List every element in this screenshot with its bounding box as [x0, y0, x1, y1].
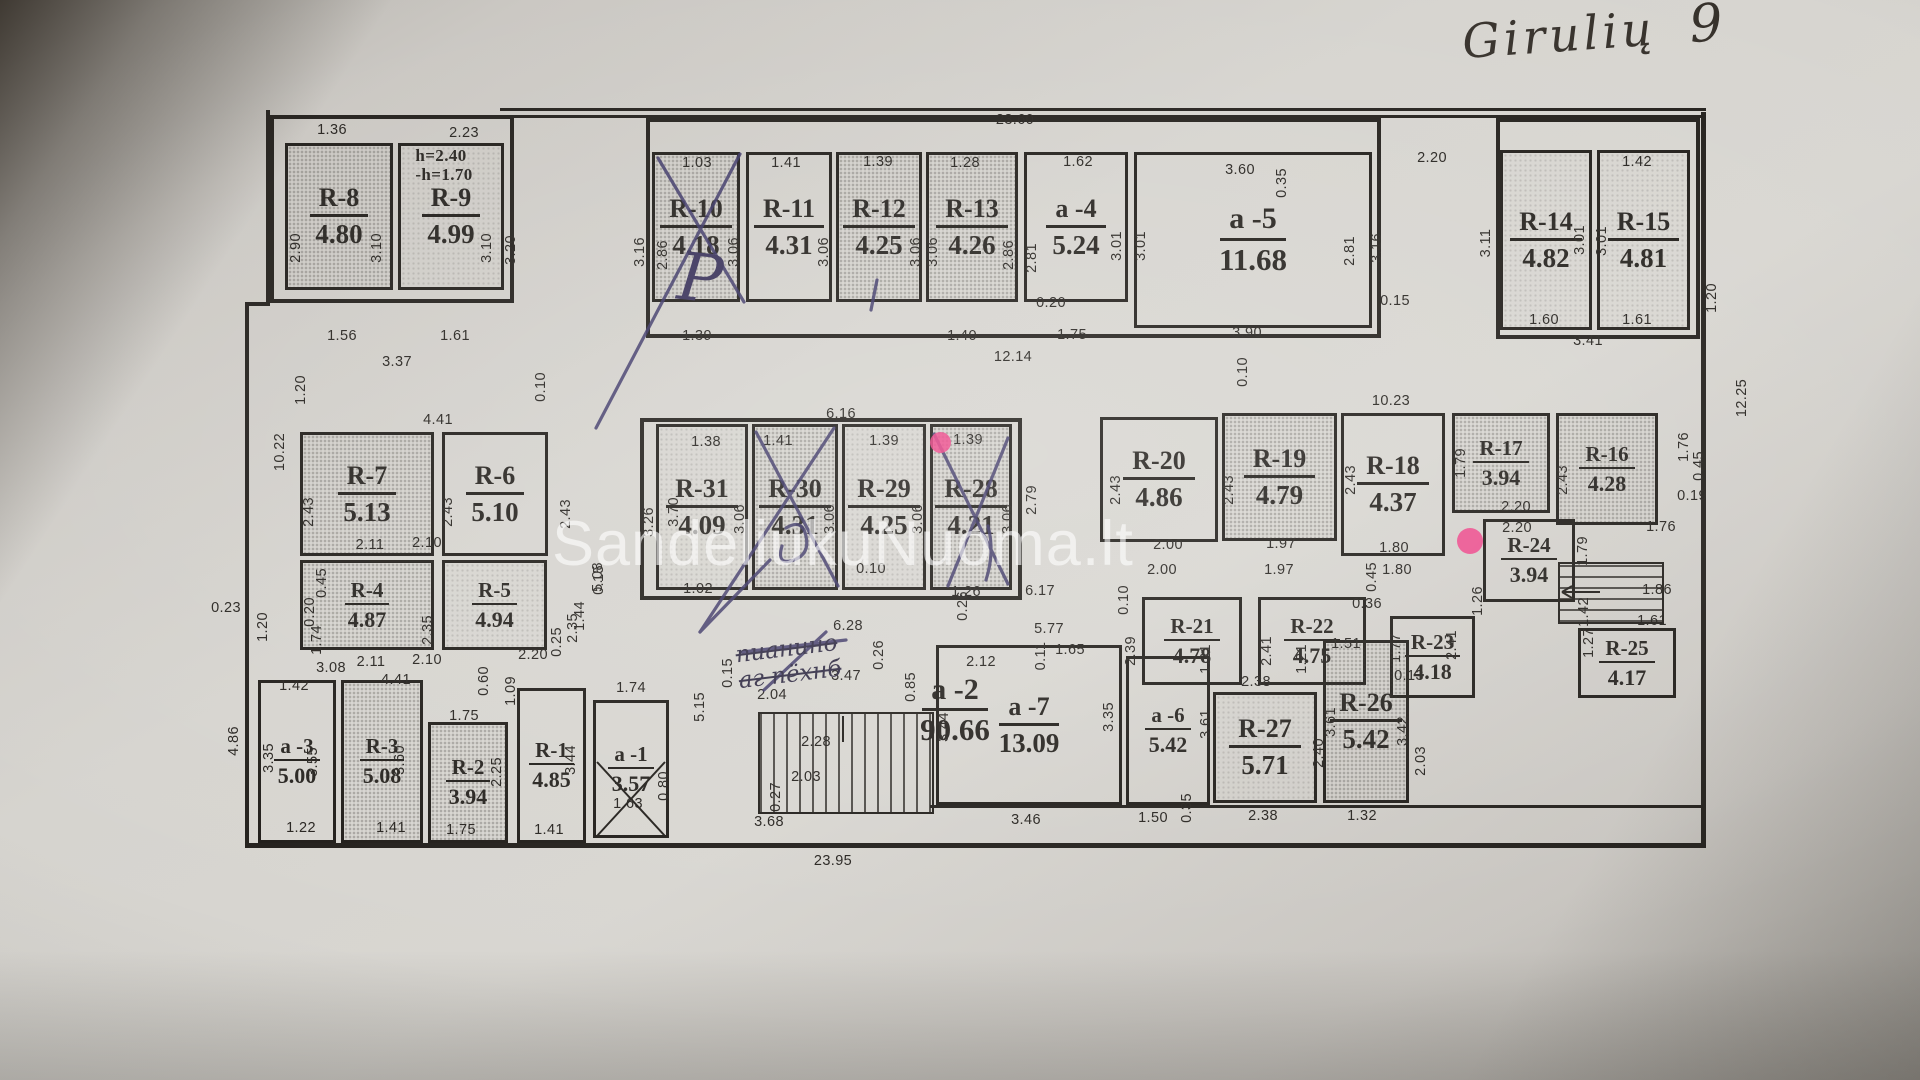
dimension-label: 1.51 [1331, 636, 1361, 652]
dimension-label: 2.43 [1108, 475, 1124, 505]
dimension-label: 1.61 [1622, 312, 1652, 328]
dimension-label: 1.02 [683, 581, 713, 597]
room-name: R-26 [1330, 689, 1401, 722]
dimension-label: 1.42 [1622, 154, 1652, 170]
dimension-label: 1.20 [293, 375, 309, 405]
dimension-label: 0.26 [871, 640, 887, 670]
room-R-15: R-154.81 [1597, 150, 1690, 330]
room-area: 13.09 [999, 726, 1060, 757]
dimension-label: 0.13 [1394, 668, 1424, 684]
dimension-label: 0.45 [314, 568, 330, 598]
dimension-label: 0.35 [1274, 168, 1290, 198]
dimension-label: 3.01 [1109, 231, 1125, 261]
dimension-label: 3.06 [726, 237, 742, 267]
dimension-label: 2.43 [301, 497, 317, 527]
room-area: 4.28 [1588, 469, 1627, 495]
height-note-line1: h=2.40 [415, 146, 466, 166]
dimension-label: 2.20 [1417, 150, 1447, 166]
dimension-label: 3.20 [503, 235, 519, 265]
dimension-label: 1.63 [613, 796, 643, 812]
dimension-label: 0.10 [1116, 585, 1132, 615]
dimension-label: 0.35 [1179, 793, 1195, 823]
room-a-4: a -45.24 [1024, 152, 1128, 302]
dimension-label: 3.42 [1395, 716, 1411, 746]
dimension-label: 1.41 [534, 822, 564, 838]
room-area: 4.37 [1369, 485, 1416, 516]
dimension-label: 2.20 [518, 647, 548, 663]
room-area: 4.81 [1620, 241, 1667, 272]
dimension-label: 0.15 [720, 658, 736, 688]
dimension-label: 1.75 [1057, 327, 1087, 343]
dimension-label: 4.41 [381, 672, 411, 688]
dimension-label: 1.27 [1581, 628, 1597, 658]
room-area: 3.57 [612, 769, 651, 795]
dimension-label: 0.60 [476, 666, 492, 696]
room-name: R-9 [422, 184, 480, 217]
dimension-label: 0.20 [302, 597, 318, 627]
dimension-label: 12.25 [1734, 379, 1750, 417]
room-name: R-15 [1608, 208, 1679, 241]
wall-bottom-right-inner [930, 805, 1706, 808]
dimension-label: 1.61 [440, 328, 470, 344]
room-area: 4.25 [855, 228, 902, 259]
room-name: R-5 [472, 579, 517, 605]
dimension-label: 3.90 [1232, 325, 1262, 341]
room-area: 11.68 [1219, 241, 1287, 277]
room-name: R-28 [935, 475, 1006, 508]
room-area: 5.13 [343, 495, 390, 526]
dimension-label: 1.76 [1676, 432, 1692, 462]
dimension-label: 10.23 [1372, 393, 1410, 409]
room-name: R-16 [1579, 443, 1634, 469]
dimension-label: 1.80 [1379, 540, 1409, 556]
dimension-label: 0.25 [549, 627, 565, 657]
room-name: R-11 [754, 195, 824, 228]
room-R-11: R-114.31 [746, 152, 832, 302]
room-name: R-12 [843, 195, 914, 228]
wall-bottom [245, 843, 1706, 848]
dimension-label: 3.61 [1198, 709, 1214, 739]
dimension-label: 2.11 [357, 654, 386, 670]
dimension-label: 2.81 [1024, 243, 1040, 273]
room-name: R-18 [1357, 452, 1428, 485]
dimension-label: 4.41 [423, 412, 453, 428]
dimension-label: 12.14 [994, 349, 1032, 365]
room-R-16: R-164.28 [1556, 413, 1658, 525]
dimension-label: 2.38 [1241, 674, 1271, 690]
dimension-label: 3.08 [316, 660, 346, 676]
dimension-label: 2.10 [412, 652, 442, 668]
dimension-label: 3.06 [925, 237, 941, 267]
dimension-label: 1.56 [327, 328, 357, 344]
dimension-label: 3.35 [1101, 702, 1117, 732]
dimension-label: 1.32 [1347, 808, 1377, 824]
dimension-label: 1.74 [309, 625, 325, 655]
dimension-label: 0.36 [1352, 596, 1382, 612]
room-area: 4.86 [1135, 480, 1182, 511]
room-R-12: R-124.25 [836, 152, 922, 302]
room-name: R-10 [660, 195, 731, 228]
dimension-label: 1.39 [869, 433, 899, 449]
room-area: 5.42 [1342, 722, 1389, 753]
height-note-line2: -h=1.70 [415, 165, 472, 185]
dimension-label: 1.76 [1646, 519, 1676, 535]
dimension-label: 1.60 [1529, 312, 1559, 328]
dimension-label: 5.77 [1034, 621, 1064, 637]
dimension-label: 3.16 [1369, 233, 1385, 263]
dimension-label: 1.75 [449, 708, 479, 724]
dimension-label: 1.20 [1704, 283, 1720, 313]
dimension-label: 0.11 [1033, 642, 1049, 671]
room-name: R-24 [1501, 534, 1556, 560]
dimension-label: 0.10 [1235, 357, 1251, 387]
room-area: 3.94 [449, 782, 488, 808]
dimension-label: 2.23 [449, 125, 479, 141]
room-name: R-4 [345, 579, 390, 605]
dimension-label: 0.80 [656, 771, 672, 801]
dimension-label: 4.86 [226, 726, 242, 756]
handwritten-title-word: Girulių [1461, 2, 1658, 70]
room-name: R-19 [1244, 445, 1315, 478]
room-name: a -6 [1145, 704, 1190, 730]
dimension-label: 1.03 [682, 155, 712, 171]
dimension-label: 1.26 [1470, 586, 1486, 616]
dimension-label: 0.10 [533, 372, 549, 402]
dimension-label: 2.43 [440, 497, 456, 527]
room-R-13: R-134.26 [926, 152, 1018, 302]
dimension-label: 2.40 [1311, 738, 1327, 768]
dimension-label: 1.77 [1388, 633, 1404, 663]
dimension-label: 2.03 [1413, 746, 1429, 776]
dimension-label: 0.45 [1364, 562, 1380, 592]
room-name: a -5 [1220, 203, 1286, 241]
room-name: R-2 [446, 756, 491, 782]
dimension-label: 3.06 [816, 237, 832, 267]
dimension-label: 2.35 [420, 615, 436, 645]
dimension-label: 3.68 [754, 814, 784, 830]
dimension-label: 3.37 [382, 354, 412, 370]
dimension-label: 2.39 [1123, 636, 1139, 666]
dimension-label: 2.00 [1147, 562, 1177, 578]
dimension-label: 1.42 [279, 678, 309, 694]
dimension-label: 0.23 [211, 600, 241, 616]
dimension-label: 1.40 [947, 328, 977, 344]
dimension-label: 1.09 [503, 676, 519, 706]
dimension-label: 3.10 [479, 233, 495, 263]
room-name: R-27 [1229, 715, 1300, 748]
room-name: R-14 [1510, 208, 1581, 241]
dimension-label: 2.25 [489, 757, 505, 787]
dimension-label: 3.44 [936, 712, 952, 742]
room-name: R-25 [1599, 637, 1654, 663]
room-area: 5.42 [1149, 730, 1188, 756]
room-area: 4.26 [948, 228, 995, 259]
dimension-label: 1.62 [1063, 154, 1093, 170]
dimension-label: 2.41 [1259, 636, 1275, 666]
dimension-label: 0.26 [955, 591, 971, 621]
dimension-label: 2.20 [1502, 520, 1532, 536]
dimension-label: 1.21 [1198, 644, 1214, 674]
dimension-label: 3.10 [369, 233, 385, 263]
dimension-label: 23.60 [996, 112, 1034, 128]
dimension-label: 3.44 [563, 745, 579, 775]
dimension-label: 1.38 [691, 434, 721, 450]
handwritten-title-number: 9 [1687, 0, 1724, 55]
dimension-label: 2.86 [1001, 240, 1017, 270]
room-R-6: R-65.10 [442, 432, 548, 556]
dimension-label: 3.60 [392, 745, 408, 775]
room-name: R-30 [759, 475, 830, 508]
dimension-label: 2.43 [1555, 465, 1571, 495]
dimension-label: 0.15 [1380, 293, 1410, 309]
dimension-label: 3.35 [261, 743, 277, 773]
dimension-label: 1.65 [1055, 642, 1085, 658]
dimension-label: 2.43 [1221, 475, 1237, 505]
dimension-label: 1.97 [1264, 562, 1294, 578]
highlight-dot-r28 [930, 432, 951, 453]
dimension-label: 6.16 [826, 406, 856, 422]
room-area: 4.82 [1522, 241, 1569, 272]
floor-plan-photo: R-84.80R-94.99R-104.18R-114.31R-124.25R-… [0, 0, 1920, 1080]
dimension-label: 1.74 [616, 680, 646, 696]
dimension-label: 1.39 [953, 432, 983, 448]
dimension-label: 3.01 [1594, 226, 1610, 256]
wall-left-lower [245, 302, 249, 847]
handwritten-scribble: пианино аг пёхнб [734, 630, 843, 695]
dimension-label: 1.28 [950, 155, 980, 171]
dimension-label: 2.81 [1342, 236, 1358, 266]
staircase-bottom [758, 712, 934, 814]
dimension-label: 3.46 [1011, 812, 1041, 828]
dimension-label: 2.41 [1444, 630, 1460, 660]
dimension-label: 3.11 [1478, 229, 1494, 258]
dimension-label: 1.39 [863, 154, 893, 170]
dimension-label: 1.80 [1382, 562, 1412, 578]
dimension-label: 0.45 [1691, 451, 1707, 481]
dimension-label: 2.86 [655, 240, 671, 270]
room-name: R-8 [310, 184, 368, 217]
dimension-label: 3.61 [1323, 707, 1339, 737]
pen-letter-p: P [674, 238, 726, 319]
dimension-label: 2.11 [356, 537, 385, 553]
dimension-label: 2.38 [1248, 808, 1278, 824]
room-a-7: a -713.09 [936, 645, 1122, 805]
handwritten-title: Girulių9 [1460, 0, 1724, 71]
dimension-label: 0.20 [1036, 295, 1066, 311]
dimension-label: 2.90 [288, 233, 304, 263]
dimension-label: 2.12 [966, 654, 996, 670]
dimension-label: 23.95 [814, 853, 852, 869]
room-area: 4.94 [475, 605, 514, 631]
room-R-19: R-194.79 [1222, 413, 1337, 541]
dimension-label: 10.22 [272, 433, 288, 471]
room-area: 4.31 [765, 228, 812, 259]
room-name: a -4 [1046, 195, 1105, 228]
dimension-label: 1.97 [1266, 536, 1296, 552]
room-name: R-17 [1473, 437, 1528, 463]
room-area: 4.99 [427, 217, 474, 248]
dimension-label: 1.21 [1294, 644, 1310, 674]
dimension-label: 2.20 [1501, 499, 1531, 515]
dimension-label: 3.55 [305, 747, 321, 777]
room-a-1: a -13.57 [593, 700, 669, 838]
dimension-label: 0.19 [1677, 488, 1707, 504]
dimension-label: 1.20 [255, 612, 271, 642]
dimension-label: 6.28 [833, 618, 863, 634]
dimension-label: 1.39 [682, 328, 712, 344]
room-name: R-13 [936, 195, 1007, 228]
room-name: a -1 [608, 743, 653, 769]
dimension-label: 3.06 [908, 237, 924, 267]
room-name: R-6 [466, 462, 524, 495]
dimension-label: 2.43 [1343, 465, 1359, 495]
room-area: 4.80 [315, 217, 362, 248]
room-name: R-29 [848, 475, 919, 508]
room-area: 4.79 [1256, 478, 1303, 509]
dimension-label: 1.50 [1138, 810, 1168, 826]
room-area: 4.17 [1608, 663, 1647, 689]
room-name: a -7 [999, 693, 1058, 726]
watermark: SandeliukuNuoma.lt [552, 508, 1134, 580]
room-name: R-20 [1123, 447, 1194, 480]
dimension-label: 2.10 [412, 535, 442, 551]
room-R-27: R-275.71 [1213, 692, 1317, 803]
room-R-5: R-54.94 [442, 560, 547, 650]
room-name: R-21 [1164, 615, 1219, 641]
dimension-label: 1.44 [572, 601, 588, 631]
room-a-5: a -511.68 [1134, 152, 1372, 328]
dimension-label: 3.01 [1133, 231, 1149, 261]
dimension-label: 1.41 [376, 820, 406, 836]
dimension-label: 2.00 [1153, 537, 1183, 553]
dimension-label: 1.75 [446, 822, 476, 838]
room-area: 5.24 [1052, 228, 1099, 259]
dimension-label: 1.36 [317, 122, 347, 138]
staircase-right [1558, 562, 1664, 624]
dimension-label: 1.79 [1453, 448, 1469, 478]
room-R-3: R-35.08 [341, 680, 423, 843]
room-area: 5.10 [471, 495, 518, 526]
dimension-label: 3.60 [1225, 162, 1255, 178]
dimension-label: 3.01 [1572, 225, 1588, 255]
dimension-label: 3.16 [632, 237, 648, 267]
room-area: 3.94 [1510, 560, 1549, 586]
room-area: 5.71 [1241, 748, 1288, 779]
dimension-label: 3.41 [1573, 333, 1603, 349]
dimension-label: 5.15 [692, 692, 708, 722]
room-R-8: R-84.80 [285, 143, 393, 290]
room-name: R-7 [338, 462, 396, 495]
dimension-label: 1.41 [763, 433, 793, 449]
room-area: 4.87 [348, 605, 387, 631]
dimension-label: 1.41 [771, 155, 801, 171]
room-area: 3.94 [1482, 463, 1521, 489]
dimension-label: 0.85 [903, 672, 919, 702]
dimension-label: 1.22 [286, 820, 316, 836]
wall-top [500, 108, 1706, 118]
highlight-dot-r24 [1457, 528, 1483, 554]
dimension-label: 6.17 [1025, 583, 1055, 599]
